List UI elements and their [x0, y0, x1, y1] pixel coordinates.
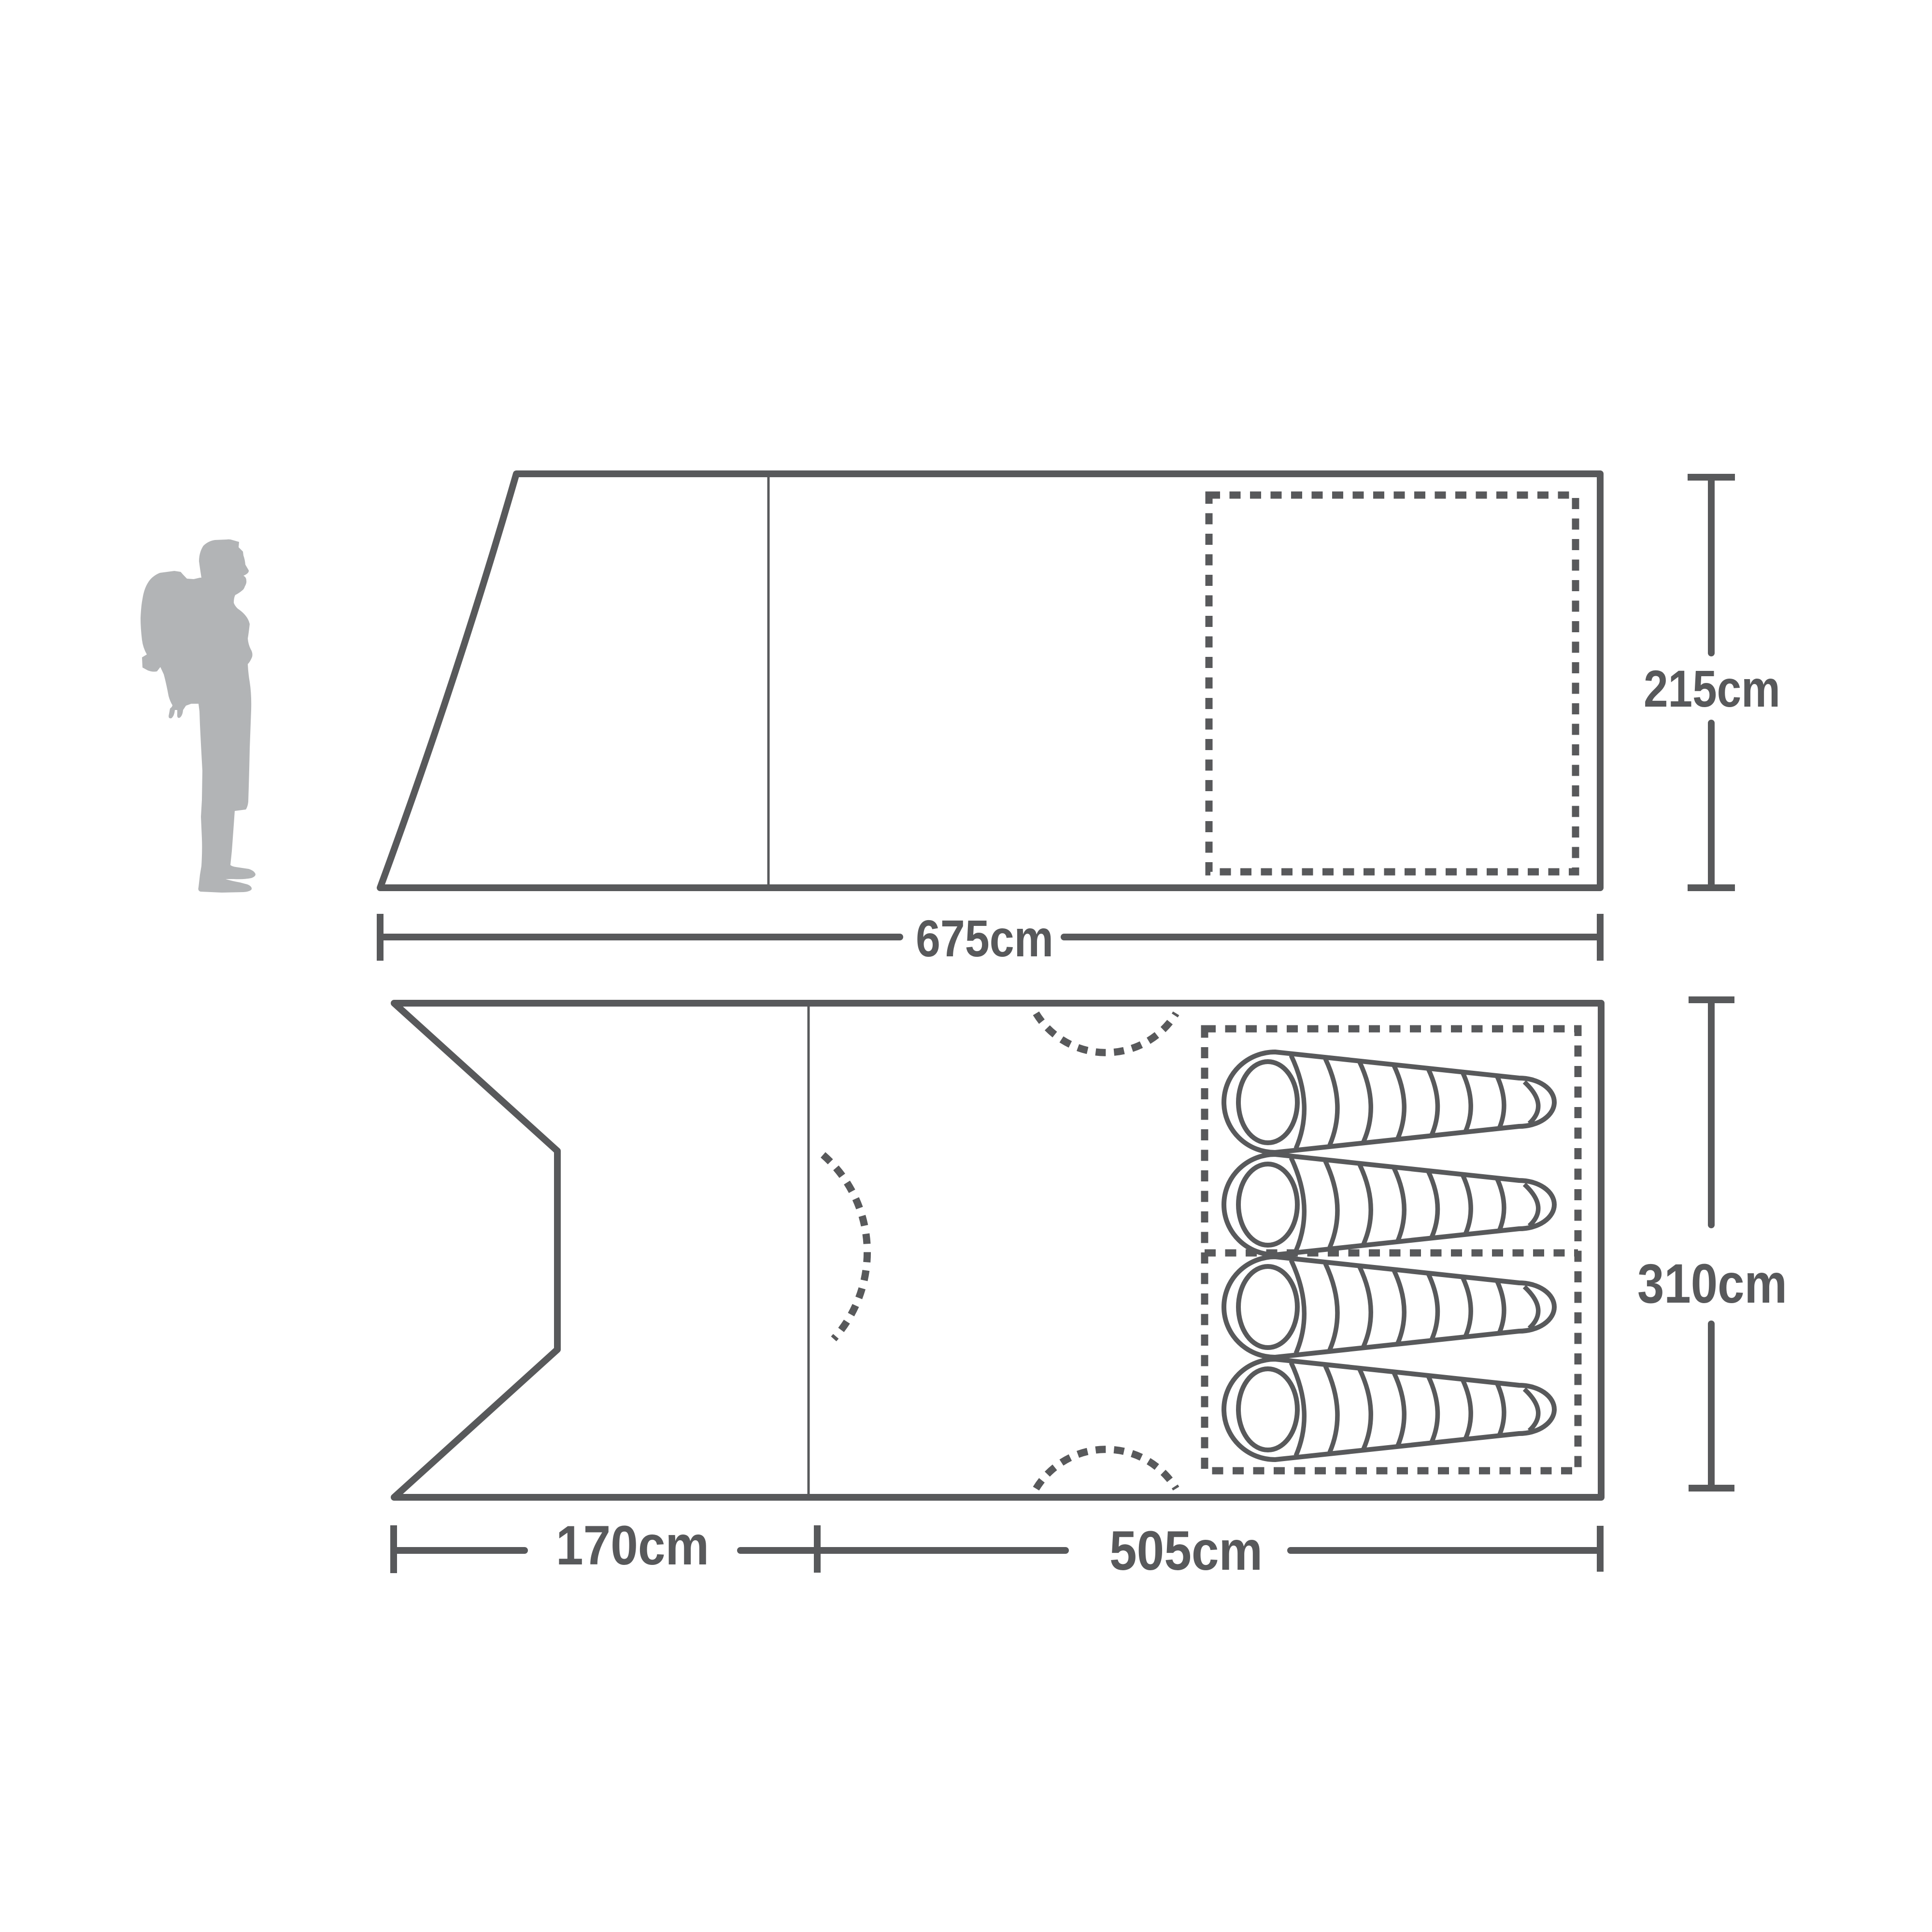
svg-text:505cm: 505cm [1109, 1520, 1263, 1582]
svg-text:310cm: 310cm [1637, 1253, 1787, 1315]
svg-text:675cm: 675cm [916, 909, 1053, 967]
svg-text:170cm: 170cm [556, 1515, 709, 1577]
svg-text:215cm: 215cm [1644, 659, 1780, 718]
